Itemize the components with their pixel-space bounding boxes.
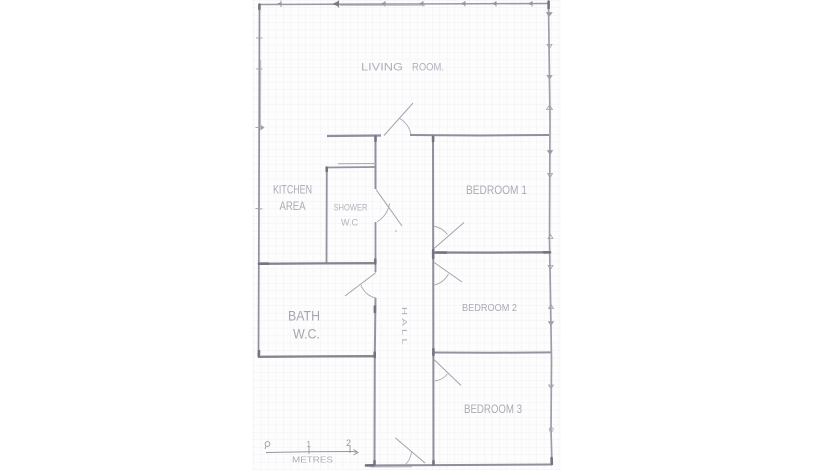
svg-text:KITCHEN: KITCHEN xyxy=(273,183,312,197)
svg-text:W.C.: W.C. xyxy=(293,327,320,342)
svg-text:2: 2 xyxy=(346,438,351,448)
svg-text:ROOM.: ROOM. xyxy=(412,62,444,74)
svg-text:BATH: BATH xyxy=(288,309,320,324)
svg-text:LIVING: LIVING xyxy=(361,62,403,74)
svg-text:W.C: W.C xyxy=(341,218,358,228)
svg-text:BEDROOM 2: BEDROOM 2 xyxy=(462,302,517,314)
svg-text:1: 1 xyxy=(307,440,312,449)
svg-text:BEDROOM 1: BEDROOM 1 xyxy=(466,185,527,197)
svg-text:HALL: HALL xyxy=(400,307,409,348)
svg-text:AREA: AREA xyxy=(280,199,306,213)
svg-text:SHOWER: SHOWER xyxy=(334,203,368,213)
svg-text:BEDROOM 3: BEDROOM 3 xyxy=(464,402,522,416)
svg-text:METRES: METRES xyxy=(292,455,333,465)
